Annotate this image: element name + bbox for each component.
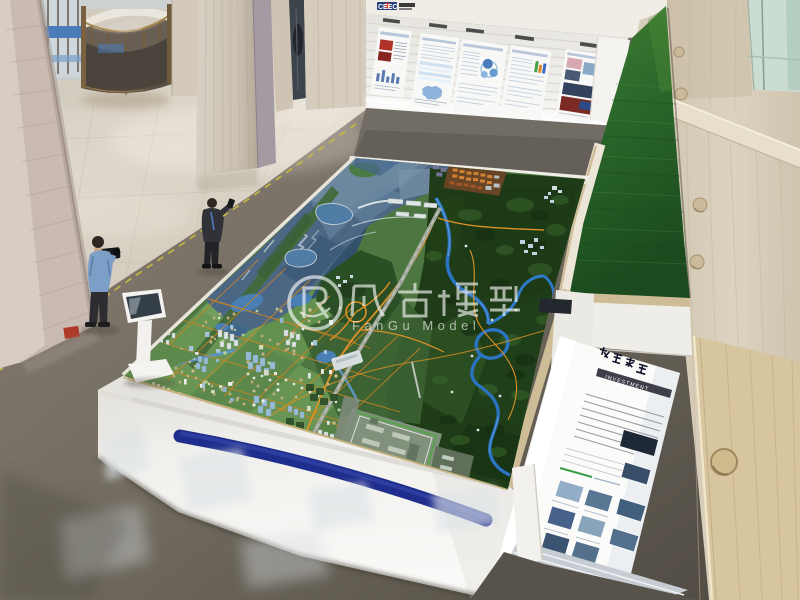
svg-text:CEEC: CEEC [378,4,397,11]
svg-text:FanGu Model: FanGu Model [352,318,480,333]
